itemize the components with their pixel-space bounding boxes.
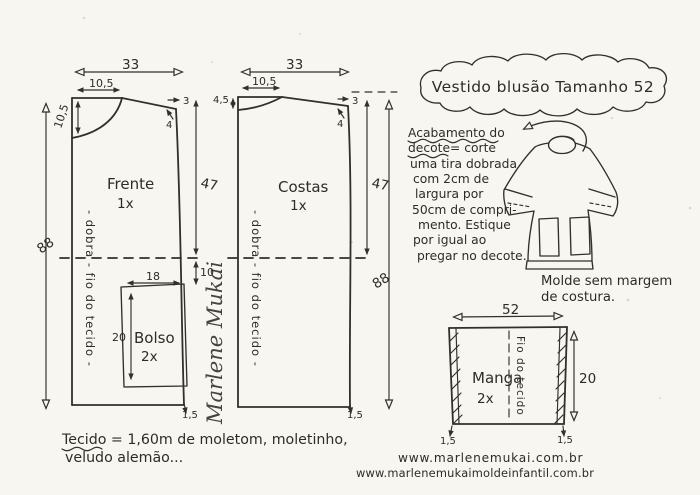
pocket-cut: 2x — [141, 349, 158, 365]
garment-right-shoulder — [575, 143, 590, 149]
back-shoulder — [282, 97, 348, 106]
front-neck-width-value: 10,5 — [89, 77, 114, 90]
sleeve-top — [449, 327, 567, 328]
garment-neckband-inner — [551, 136, 574, 140]
instruction-line-3: uma tira dobrada — [410, 157, 517, 171]
front-neck-depth-value: 10,5 — [51, 103, 71, 130]
back-dim-4-line — [338, 109, 344, 118]
title-bubble: Vestido blusão Tamanho 52 — [420, 54, 666, 116]
back-grainline-text: - dobra - fio do tecido - — [249, 210, 263, 367]
front-neck-curve — [72, 98, 122, 138]
instruction-line-4: com 2cm de — [413, 172, 489, 186]
sleeve-width-value: 52 — [502, 302, 519, 318]
sleeve-piece: 52 20 1,5 1,5 Manga 2x Fio do tecido — [440, 302, 596, 447]
garment-left-cuff-line — [505, 189, 532, 197]
front-total-length-value: 88 — [34, 234, 57, 257]
garment-left-pocket — [539, 218, 559, 256]
garment-right-cuff-line — [589, 189, 615, 197]
website-line-1: www.marlenemukai.com.br — [398, 451, 584, 465]
back-piece-cut: 1x — [290, 198, 307, 214]
front-grainline-text: - dobra - fio do tecido - — [83, 210, 97, 367]
front-piece-cut: 1x — [117, 196, 134, 212]
instruction-line-5: largura por — [415, 187, 484, 201]
sleeve-hem-extra-right-value: 1,5 — [557, 435, 573, 446]
page-title: Vestido blusão Tamanho 52 — [432, 78, 654, 96]
instruction-line-9: pregar no decote. — [417, 249, 527, 263]
pointer-arrow — [524, 121, 586, 151]
front-shoulder-slant-value: 4 — [166, 120, 172, 131]
instruction-line-8: por igual ao — [413, 233, 486, 247]
back-neck-curve — [238, 97, 282, 110]
garment-hem-band — [526, 261, 593, 269]
sleeve-hem-left-arrow — [450, 426, 452, 436]
instruction-line-6: 50cm de compri- — [412, 203, 517, 217]
front-pocket-height-value: 20 — [112, 331, 126, 344]
front-piece-label: Frente — [107, 175, 154, 193]
back-neck-width-value: 10,5 — [252, 75, 277, 88]
front-side-length-value: 47 — [199, 175, 219, 194]
sleeve-grainline-text: Fio do tecido — [514, 336, 526, 416]
back-side-length-value: 47 — [370, 175, 390, 194]
front-pocket-width-value: 18 — [146, 270, 160, 283]
fabric-note: Tecido = 1,60m de moletom, moletinho, ve… — [61, 432, 348, 466]
garment-right-cuff-stitch — [590, 203, 612, 207]
garment-right-pocket — [570, 217, 590, 255]
sleeve-length-value: 20 — [579, 371, 596, 387]
signature: Marlene Mukai — [203, 261, 227, 425]
garment-left-shoulder — [535, 143, 549, 147]
sleeve-right-outer — [564, 327, 567, 424]
fabric-note-line-1: Tecido = 1,60m de moletom, moletinho, — [61, 432, 348, 448]
back-piece: 33 10,5 4,5 3 4 47 88 1,5 Costas 1x - do… — [213, 57, 397, 421]
back-shoulder-drop-value: 3 — [352, 96, 358, 107]
back-top-width-value: 33 — [286, 57, 303, 73]
front-side-seam — [176, 109, 184, 405]
instruction-line-1: Acabamento do — [408, 126, 505, 140]
sleeve-piece-cut: 2x — [477, 391, 494, 407]
front-dim-4-line — [167, 110, 173, 119]
front-hem-extra-value: 1,5 — [182, 410, 198, 421]
back-side-seam — [348, 106, 351, 407]
front-shoulder-drop-value: 3 — [183, 96, 189, 107]
back-neck-depth-value: 4,5 — [213, 95, 229, 106]
front-piece: 33 10,5 10,5 3 4 47 88 10 18 20 1,5 Fren… — [34, 57, 219, 421]
neckline-instructions: Acabamento do decote= corte uma tira dob… — [408, 121, 586, 263]
sewing-pattern-sheet: 33 10,5 10,5 3 4 47 88 10 18 20 1,5 Fren… — [0, 0, 700, 495]
websites: www.marlenemukai.com.br www.marlenemukai… — [356, 451, 594, 480]
pattern-drawing: 33 10,5 10,5 3 4 47 88 10 18 20 1,5 Fren… — [0, 0, 700, 495]
website-line-2: www.marlenemukaimoldeinfantil.com.br — [356, 466, 594, 480]
back-hem-extra-value: 1,5 — [347, 410, 363, 421]
garment-note-line-1: Molde sem margem — [541, 274, 672, 289]
pocket-label: Bolso — [134, 329, 175, 347]
sleeve-hem-extra-left-value: 1,5 — [440, 436, 456, 447]
back-piece-label: Costas — [278, 178, 329, 196]
front-top-width-value: 33 — [122, 57, 139, 73]
fabric-note-line-2: veludo alemão... — [65, 450, 183, 466]
back-shoulder-slant-value: 4 — [337, 119, 343, 130]
garment-note-line-2: de costura. — [541, 290, 615, 305]
garment-sketch: Molde sem margem de costura. — [504, 136, 673, 305]
instruction-line-7: mento. Estique — [418, 218, 511, 232]
